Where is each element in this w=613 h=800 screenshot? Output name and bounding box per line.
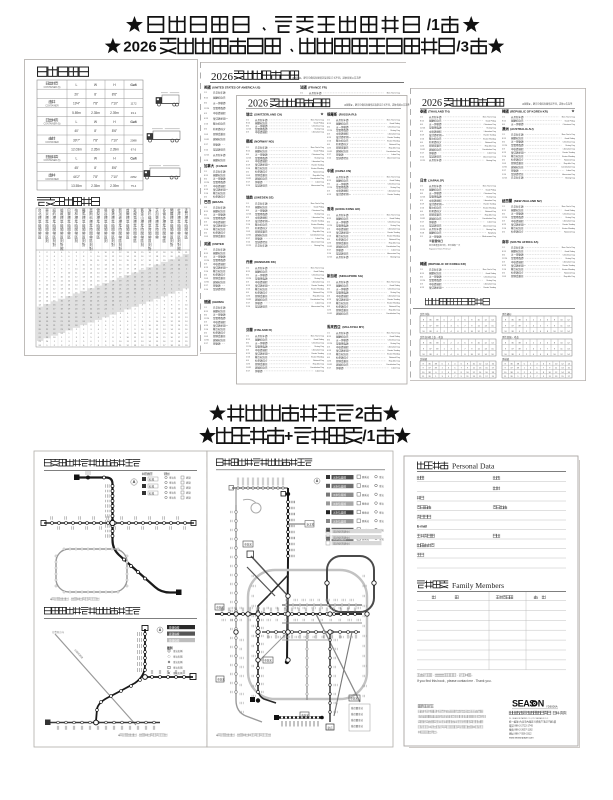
svg-text:Epiphany: Epiphany [488,233,496,235]
svg-text:Victory Day: Victory Day [486,196,496,199]
svg-text:獨立紀念日: 獨立紀念日 [213,227,226,231]
svg-text:中秋節連假: 中秋節連假 [336,227,349,231]
svg-text:中秋節連假: 中秋節連假 [213,184,226,188]
svg-text:L: L [76,83,78,87]
svg-text:New Year's Day: New Year's Day [387,332,400,335]
svg-text:淡水信義線: 淡水信義線 [333,520,346,524]
svg-text:10/31: 10/31 [327,151,333,153]
svg-text:12/26: 12/26 [246,346,252,348]
svg-text:Labor Day: Labor Day [487,152,496,155]
svg-text:10/31: 10/31 [502,167,508,169]
svg-text:仲夏節前夕: 仲夏節前夕 [213,273,226,277]
svg-text:Good Friday: Good Friday [390,335,400,338]
svg-text:獨立紀念日: 獨立紀念日 [255,222,268,226]
svg-text:元旦新年節: 元旦新年節 [429,158,442,162]
svg-text:中秋節連假: 中秋節連假 [255,215,268,219]
svg-text:Victory Day: Victory Day [565,144,575,147]
svg-text:Easter Monday: Easter Monday [387,139,400,142]
svg-text:(HONG KONG HK): (HONG KONG HK) [335,207,360,211]
svg-text:倫敦標準時間帶區刻對照: 倫敦標準時間帶區刻對照 [60,207,64,251]
svg-text:柏林標準時間帶區刻: 柏林標準時間帶區刻 [75,207,79,243]
svg-text:耶穌受難日: 耶穌受難日 [336,241,349,245]
svg-text:10/31: 10/31 [420,218,426,220]
svg-text:五一勞動節: 五一勞動節 [255,208,268,212]
svg-text:中秋節連假: 中秋節連假 [336,189,349,193]
svg-text:杜拜標準時間帶區刻對照: 杜拜標準時間帶區刻對照 [177,207,181,251]
svg-text:復活節星期一: 復活節星期一 [213,223,229,227]
svg-text:聖靈降臨節: 聖靈降臨節 [511,143,524,147]
svg-text:五一勞動節: 五一勞動節 [213,177,226,181]
svg-text:聖靈降臨節: 聖靈降臨節 [511,215,524,219]
svg-text:五一勞動節: 五一勞動節 [429,122,442,126]
svg-text:獨立紀念日: 獨立紀念日 [213,269,226,273]
svg-text:勞動節: 勞動節 [336,152,344,156]
svg-text:Labor Day: Labor Day [315,370,324,373]
svg-text:耶穌受難日: 耶穌受難日 [213,234,226,238]
svg-text:/3: /3 [456,38,469,55]
svg-text:Liberation Day: Liberation Day [563,261,575,264]
svg-text:2026: 2026 [211,71,234,83]
svg-text:Republic Day: Republic Day [389,243,400,245]
svg-text:12/26: 12/26 [502,145,508,147]
svg-text:建國紀念日: 建國紀念日 [336,362,349,366]
svg-text:(SINGAPORE SG): (SINGAPORE SG) [339,274,363,278]
svg-text:CONTAINER: CONTAINER [45,105,59,108]
svg-text:仲夏節前夕: 仲夏節前夕 [213,231,226,235]
svg-text:中秋節連假: 中秋節連假 [213,220,226,224]
svg-text:勞動節: 勞動節 [336,248,344,252]
svg-text:Good Friday: Good Friday [565,250,575,253]
svg-text:貓空纜車站: 貓空纜車站 [351,718,364,722]
svg-text:雪梨標準時間帶區: 雪梨標準時間帶區 [97,207,101,239]
svg-text:國慶紀念日: 國慶紀念日 [255,149,268,153]
svg-text:Christmas Day: Christmas Day [388,288,400,291]
svg-text:五一勞動節: 五一勞動節 [213,101,226,105]
svg-text:Christmas Day: Christmas Day [563,212,575,215]
svg-text:中秋節連假: 中秋節連假 [213,262,226,266]
svg-text:泰國: 泰國 [419,109,427,114]
svg-text:五一勞動節: 五一勞動節 [511,212,524,216]
svg-text:中秋節連假: 中秋節連假 [429,282,442,286]
svg-text:瑞典: 瑞典 [246,195,253,200]
svg-text:勞動節: 勞動節 [213,142,221,146]
svg-text:曼谷標準時間帶區刻: 曼谷標準時間帶區刻 [104,207,108,243]
svg-text:Good Friday: Good Friday [565,137,575,140]
svg-text:(SWITZERLAND CH): (SWITZERLAND CH) [254,112,282,116]
svg-text:元旦新年節: 元旦新年節 [213,247,226,251]
svg-text:10/31: 10/31 [327,364,333,366]
svg-text:Constitution Day: Constitution Day [482,148,496,151]
svg-text:轉乘站: 轉乘站 [362,493,370,497]
svg-text:New Year's Day: New Year's Day [387,281,400,284]
svg-text:Ascension Day: Ascension Day [311,184,324,187]
svg-text:Good Friday: Good Friday [314,338,324,341]
svg-text:勞動節: 勞動節 [429,151,437,155]
svg-text:五一勞動節: 五一勞動節 [213,313,226,317]
svg-text:2.39m: 2.39m [110,184,119,188]
svg-text:Easter Sunday: Easter Sunday [563,223,575,226]
svg-text:轉乘站: 轉乘站 [362,510,370,514]
svg-text:元旦新年節: 元旦新年節 [336,175,349,179]
svg-text:聖靈降臨節: 聖靈降臨節 [255,344,268,348]
svg-text:國慶紀念日: 國慶紀念日 [255,269,268,273]
svg-text:※振替休日: ※振替休日 [429,239,443,243]
svg-text:復活節星期一: 復活節星期一 [255,283,271,287]
svg-text:聖靈降臨節: 聖靈降臨節 [336,185,349,189]
svg-text:復活節星期一: 復活節星期一 [511,263,527,267]
svg-text:芝加哥標準時間帶: 芝加哥標準時間帶 [155,207,159,239]
svg-text:Constitution Day: Constitution Day [386,312,400,315]
svg-text:元旦新年節: 元旦新年節 [511,132,524,136]
svg-text:耶穌受難日: 耶穌受難日 [429,213,442,217]
svg-text:仲夏節前夕: 仲夏節前夕 [336,304,349,308]
svg-text:Easter Monday: Easter Monday [311,167,324,170]
svg-text:National Day: National Day [313,227,324,230]
svg-text:Constitution Day: Constitution Day [386,363,400,366]
svg-text:12/26: 12/26 [204,318,210,320]
svg-text:(REPUBLIC OF KOREA KR): (REPUBLIC OF KOREA KR) [510,109,548,113]
svg-text:中秋節連假: 中秋節連假 [255,159,268,163]
svg-text:New Year's Day: New Year's Day [311,335,324,338]
svg-text:Liberation Day: Liberation Day [312,160,324,163]
svg-text:終點: 終點 [186,491,191,495]
svg-text:Easter Sunday: Easter Sunday [312,220,324,223]
svg-text:Easter Sunday: Easter Sunday [484,203,496,206]
svg-text:Christmas Day: Christmas Day [563,253,575,256]
svg-text:國慶紀念日: 國慶紀念日 [255,205,268,209]
svg-text:五一勞動節: 五一勞動節 [213,255,226,259]
svg-text:Christmas Day: Christmas Day [312,125,324,128]
svg-text:聖誕節翌日: 聖誕節翌日 [255,240,268,244]
svg-text:復活節星期一: 復活節星期一 [213,187,229,191]
svg-text:復活節星期一: 復活節星期一 [213,116,229,120]
svg-text:建國紀念日: 建國紀念日 [255,365,268,369]
svg-text:Constitution Day: Constitution Day [310,234,324,237]
svg-text:仲夏節前夕: 仲夏節前夕 [255,358,268,362]
svg-text:Republic Day: Republic Day [564,276,575,278]
svg-text:(REPUBLIC OF KOREA KR): (REPUBLIC OF KOREA KR) [428,262,466,266]
svg-text:建國紀念日: 建國紀念日 [429,216,442,220]
svg-text:8': 8' [94,92,97,96]
svg-text:車站名: 車站名 [169,496,177,500]
svg-text:仲夏節前夕: 仲夏節前夕 [429,140,442,144]
svg-text:耶穌受難日: 耶穌受難日 [255,173,268,177]
svg-text:建國紀念日: 建國紀念日 [429,147,442,151]
svg-text:終點: 終點 [186,476,191,480]
svg-text:車站名: 車站名 [169,486,177,490]
svg-text:2352: 2352 [130,175,137,179]
svg-text:聖誕節翌日: 聖誕節翌日 [213,287,226,291]
svg-text:中秋節連假: 中秋節連假 [255,280,268,284]
svg-text:2.39m: 2.39m [110,111,119,115]
svg-text:仲夏節前夕: 仲夏節前夕 [255,226,268,230]
svg-text:五一勞動節: 五一勞動節 [429,191,442,195]
svg-text:N: N [538,699,545,709]
svg-text:(MALAYSIA MY): (MALAYSIA MY) [342,325,364,329]
svg-text:男性襯衫: 男性襯衫 [502,312,512,316]
svg-text:National Day: National Day [389,238,400,241]
svg-text:車站名: 車站名 [216,606,224,610]
svg-text:Christmas Day: Christmas Day [563,140,575,143]
svg-text:紅線: 紅線 [149,477,155,481]
svg-text:聖靈降臨節: 聖靈降臨節 [429,126,442,130]
svg-text:Boxing Day: Boxing Day [486,160,496,162]
svg-text:網址 886-7-556-3312: 網址 886-7-556-3312 [509,732,532,736]
svg-text:五一勞動節: 五一勞動節 [336,220,349,224]
svg-text:車站: 車站 [379,519,384,523]
svg-text:44'2": 44'2" [73,175,80,179]
svg-text:男性西服・毛衣: 男性西服・毛衣 [502,335,519,339]
svg-text:元旦新年節: 元旦新年節 [511,204,524,208]
svg-text:聖靈降臨節: 聖靈降臨節 [429,278,442,282]
svg-text:新店: 新店 [328,726,334,730]
svg-text:Victory Day: Victory Day [565,257,575,260]
svg-text:車站: 車站 [379,484,384,488]
svg-text:淡水信義線: 淡水信義線 [333,484,346,488]
svg-text:耶穌受難日: 耶穌受難日 [336,308,349,312]
svg-text:車站名: 車站名 [264,659,272,663]
svg-text:日本: 日本 [420,178,427,183]
svg-text:環狀線(興建中): 環狀線(興建中) [333,535,350,539]
svg-text:Ascension Day: Ascension Day [311,241,324,244]
svg-text:Republic Day: Republic Day [485,146,496,148]
svg-text:車站名: 車站名 [301,714,309,718]
svg-text:獨立紀念日: 獨立紀念日 [255,287,268,291]
svg-text:五一勞動節: 五一勞動節 [255,341,268,345]
svg-text:獨立紀念日: 獨立紀念日 [255,355,268,359]
svg-text:車站名稱: 車站名稱 [173,649,183,653]
svg-text:Personal Data: Personal Data [452,462,495,471]
svg-text:復活節星期一: 復活節星期一 [255,163,271,167]
svg-text:Victory Day: Victory Day [390,342,400,345]
svg-text:國慶紀念日: 國慶紀念日 [336,334,349,338]
svg-text:紅線: 紅線 [149,484,155,488]
svg-text:2088: 2088 [130,138,137,142]
svg-text:五一勞動節: 五一勞動節 [429,275,442,279]
svg-text:終點: 終點 [186,481,191,485]
svg-text:/1: /1 [427,17,440,34]
svg-text:五一勞動節: 五一勞動節 [429,234,442,238]
svg-text:車站名稱: 車站名稱 [173,671,183,675]
svg-text:女性衣(裙)上衣・毛衣: 女性衣(裙)上衣・毛衣 [420,335,444,339]
svg-text:終點: 終點 [186,496,191,500]
svg-text:復活節星期一: 復活節星期一 [255,219,271,223]
svg-text:Easter Monday: Easter Monday [311,288,324,291]
svg-text:聖誕節翌日: 聖誕節翌日 [255,183,268,187]
svg-text:10/31: 10/31 [327,246,333,248]
svg-text:8'6": 8'6" [112,129,118,133]
svg-text:勞動節: 勞動節 [213,341,221,345]
svg-text:中國: 中國 [327,168,334,173]
svg-text:轉乘站: 轉乘站 [362,475,370,479]
svg-text:10/31: 10/31 [246,235,252,237]
svg-text:獨立紀念日: 獨立紀念日 [336,234,349,238]
svg-text:建國紀念日: 建國紀念日 [255,297,268,301]
svg-text:10/31: 10/31 [246,178,252,180]
svg-text:聖誕節翌日: 聖誕節翌日 [511,172,524,176]
svg-text:元旦新年節: 元旦新年節 [511,176,524,180]
svg-text:New Year's Day: New Year's Day [387,92,400,95]
svg-text:(NORWAY NO): (NORWAY NO) [254,139,274,143]
svg-text:耶穌受難日: 耶穌受難日 [213,276,226,280]
svg-text:CONTAINER (ft): CONTAINER (ft) [44,123,61,126]
svg-text:淡水信義線: 淡水信義線 [333,476,346,480]
svg-text:12/25: 12/25 [502,177,508,179]
svg-text:Good Friday: Good Friday [314,206,324,209]
svg-text:10/31: 10/31 [420,149,426,151]
svg-text:67.6: 67.6 [131,148,137,152]
svg-text:7'10": 7'10" [111,138,118,142]
svg-text:勞動節: 勞動節 [429,220,437,224]
svg-text:Republic Day: Republic Day [313,296,324,298]
svg-text:國慶紀念日: 國慶紀念日 [336,216,349,220]
svg-text:多倫多標準時間帶區: 多倫多標準時間帶區 [163,207,167,243]
svg-text:Republic Day: Republic Day [389,310,400,312]
svg-text:Constitution Day: Constitution Day [310,177,324,180]
svg-text:元旦新年節: 元旦新年節 [429,115,442,119]
svg-text:中秋節連假: 中秋節連假 [429,129,442,133]
svg-text:元旦新年節: 元旦新年節 [255,266,268,270]
svg-text:Sapporo Snow Festival: Sapporo Snow Festival [429,248,451,251]
svg-text:Victory Day: Victory Day [314,157,324,160]
svg-text:Good Friday: Good Friday [486,272,496,275]
svg-text:(NEW ZEALAND NZ): (NEW ZEALAND NZ) [514,199,542,203]
svg-text:(JAPAN JP): (JAPAN JP) [428,178,444,182]
svg-text:獨立紀念日: 獨立紀念日 [511,226,524,230]
svg-text:10/31: 10/31 [204,282,210,284]
svg-text:Christmas Day: Christmas Day [388,339,400,342]
svg-text:Constitution Day: Constitution Day [482,217,496,220]
svg-text:聖誕節翌日: 聖誕節翌日 [336,156,349,160]
svg-text:車站: 車站 [379,475,384,479]
svg-text:New Year's Day: New Year's Day [311,202,324,205]
svg-text:Boxing Day: Boxing Day [390,257,400,259]
svg-text:Easter Sunday: Easter Sunday [563,151,575,154]
svg-text:New Year's Day: New Year's Day [311,146,324,149]
svg-text:復活節星期一: 復活節星期一 [429,202,445,206]
svg-text:元旦新年節: 元旦新年節 [336,255,349,259]
svg-text:45': 45' [74,166,79,170]
svg-text:Easter Monday: Easter Monday [562,268,575,271]
svg-text:仲夏節前夕: 仲夏節前夕 [213,331,226,335]
svg-text:Labor Day: Labor Day [391,249,400,252]
svg-text:五一勞動節: 五一勞動節 [336,125,349,129]
svg-text:Cum: Cum [130,120,137,124]
svg-text:五一勞動節: 五一勞動節 [336,287,349,291]
svg-text:Liberation Day: Liberation Day [388,133,400,136]
svg-text:獨立紀念日: 獨立紀念日 [255,166,268,170]
svg-text:Ascension Day: Ascension Day [387,252,400,255]
svg-text:8'6": 8'6" [112,92,118,96]
svg-text:瑞士: 瑞士 [246,112,253,117]
svg-text:12/26: 12/26 [420,128,426,130]
svg-text:10/31: 10/31 [204,340,210,342]
svg-text:(THAILAND TH): (THAILAND TH) [428,109,449,113]
svg-text:2.35m: 2.35m [91,184,100,188]
svg-text:(SWEDEN SE): (SWEDEN SE) [254,195,273,199]
svg-text:五一勞動節: 五一勞動節 [255,152,268,156]
svg-text:(UNITED STATES OF AMERICA US: (UNITED STATES OF AMERICA US) [212,85,260,89]
svg-text:勞動節: 勞動節 [255,236,263,240]
svg-text:建國紀念日: 建國紀念日 [336,149,349,153]
svg-text:Constitution Day: Constitution Day [386,150,400,153]
svg-text:Constitution Day: Constitution Day [386,245,400,248]
svg-text:7'8": 7'8" [93,175,98,179]
svg-text:勞動節: 勞動節 [255,180,263,184]
svg-text:元旦新年節: 元旦新年節 [511,245,524,249]
svg-text:Easter Sunday: Easter Sunday [388,349,400,352]
svg-text:National Day: National Day [485,141,496,144]
svg-text:2.35m: 2.35m [91,111,100,115]
svg-text:2: 2 [355,405,364,422]
svg-text:中秋節連假: 中秋節連假 [511,147,524,151]
svg-text:Ascension Day: Ascension Day [562,173,575,176]
svg-text:Liberation Day: Liberation Day [312,131,324,134]
svg-text:加拿大: 加拿大 [203,163,215,168]
svg-text:復活節星期一: 復活節星期一 [429,133,445,137]
svg-text:聖靈降臨節: 聖靈降臨節 [511,256,524,260]
svg-text:(CANAD: (CANAD [216,164,227,168]
svg-text:舊金山標準時間帶區刻: 舊金山標準時間帶區刻 [141,207,145,247]
svg-text:勞動節: 勞動節 [255,369,263,373]
svg-text:(CHINA CN): (CHINA CN) [335,169,351,173]
svg-text:獨立紀念日: 獨立紀念日 [511,154,524,158]
svg-text:Ascension Day: Ascension Day [483,155,496,158]
svg-text:12/26: 12/26 [204,108,210,110]
svg-text:國慶紀念日: 國慶紀念日 [336,178,349,182]
svg-text:Good Friday: Good Friday [314,270,324,273]
svg-text:Labor Day: Labor Day [391,153,400,156]
svg-text:(AUSTRALIA AU): (AUSTRALIA AU) [510,127,533,131]
svg-text:仲夏節前夕: 仲夏節前夕 [255,170,268,174]
svg-text:New Year's Day: New Year's Day [387,214,400,217]
svg-text:National Day: National Day [485,210,496,213]
svg-text:復活節星期一: 復活節星期一 [429,285,445,289]
svg-text:Liberation Day: Liberation Day [312,281,324,284]
svg-text:Liberation Day: Liberation Day [312,216,324,219]
svg-text:Christmas Day: Christmas Day [563,123,575,126]
svg-text:中秋節連假: 中秋節連假 [213,111,226,115]
svg-text:獨立紀念日: 獨立紀念日 [213,327,226,331]
svg-text:復活節星期一: 復活節星期一 [511,150,527,154]
svg-text:南非: 南非 [502,239,509,244]
svg-text:淡水信義線: 淡水信義線 [333,511,346,515]
svg-text:Labor Day: Labor Day [566,169,575,172]
svg-text:Victory Day: Victory Day [314,213,324,216]
svg-text:7'10": 7'10" [111,175,118,179]
svg-text:國慶紀念日: 國慶紀念日 [429,119,442,123]
svg-text:12/26: 12/26 [204,260,210,262]
svg-text:仲夏節前夕: 仲夏節前夕 [213,127,226,131]
svg-text:Easter Monday: Easter Monday [483,206,496,209]
svg-text:Christmas Day: Christmas Day [484,192,496,195]
svg-text:仲夏節前夕: 仲夏節前夕 [255,290,268,294]
svg-text:國慶紀念日: 國慶紀念日 [213,158,226,162]
svg-text:聖靈降臨節: 聖靈降臨節 [213,180,226,184]
svg-text:新北投: 新北投 [307,523,315,527]
svg-text:元旦新年節: 元旦新年節 [511,115,524,119]
svg-text:Easter Monday: Easter Monday [387,302,400,305]
svg-text:五一勞動節: 五一勞動節 [511,122,524,126]
svg-text:E-mail: E-mail [417,524,427,528]
svg-text:Easter Sunday: Easter Sunday [388,231,400,234]
svg-text:捷運綠線: 捷運綠線 [169,638,180,642]
svg-text:仲夏節前夕: 仲夏節前夕 [336,355,349,359]
svg-text:法國: 法國 [300,85,307,90]
svg-text:National Day: National Day [389,305,400,308]
svg-text:建國紀念日: 建國紀念日 [213,137,226,141]
svg-text:淡水信義線: 淡水信義線 [333,493,346,497]
